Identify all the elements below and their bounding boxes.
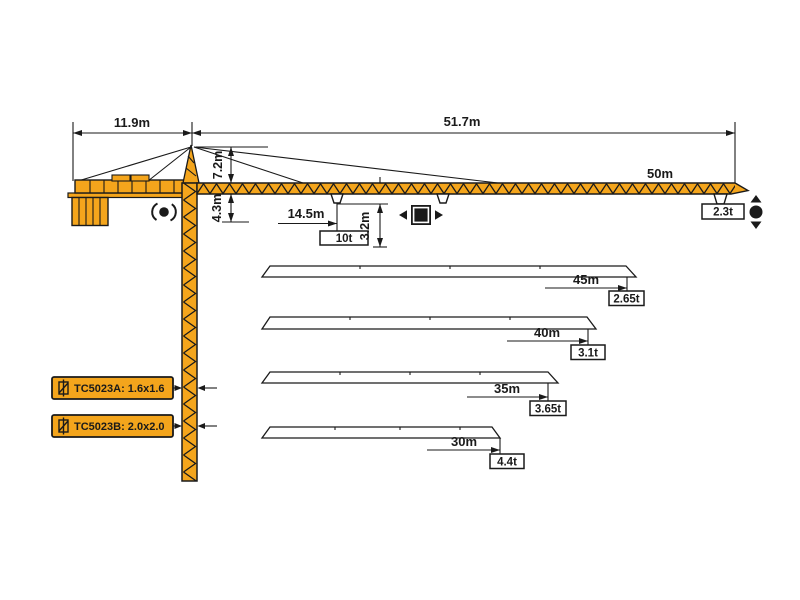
- jib-variant-45m: 45m 2.65t: [262, 266, 644, 306]
- hook-icon: [437, 194, 449, 203]
- jib-variant-40m: 40m 3.1t: [262, 317, 605, 360]
- hook-icon: [331, 194, 343, 203]
- tip-load-50m: 2.3t: [702, 204, 744, 219]
- tower-mast: [182, 145, 199, 481]
- counter-jib-cabin-box: [131, 175, 149, 181]
- mast-option-a-label: TC5023A: 1.6x1.6: [74, 383, 165, 395]
- tip-load-45m-value: 2.65t: [613, 294, 639, 306]
- min-radius-label: 14.5m: [288, 206, 325, 221]
- hook-icon: [714, 194, 727, 204]
- tip-load-40m-value: 3.1t: [578, 348, 598, 360]
- jib-underside-dimension: 4.3m: [210, 194, 249, 223]
- tip-load-50m-value: 2.3t: [713, 207, 733, 219]
- jib-35m-label: 35m: [494, 381, 520, 396]
- hoist-icon: [750, 195, 763, 229]
- jib-30m-label: 30m: [451, 434, 477, 449]
- tip-load-35m-value: 3.65t: [535, 404, 561, 416]
- mast-option-b-label: TC5023B: 2.0x2.0: [74, 421, 165, 433]
- jib-underside-height-label: 4.3m: [210, 194, 224, 223]
- crane-spec-diagram: 11.9m 51.7m: [0, 0, 800, 600]
- main-jib-length-label: 51.7m: [444, 114, 481, 129]
- hook-drop-label: 3.2m: [358, 212, 372, 241]
- tower-head-spire: [183, 145, 199, 183]
- jib-variant-30m: 30m 4.4t: [262, 427, 524, 469]
- crane-diagram-svg: 11.9m 51.7m: [0, 0, 800, 600]
- min-radius-dimension: 14.5m 10t: [278, 203, 368, 245]
- slewing-icon: [152, 204, 176, 221]
- trolley-hooks: [331, 194, 727, 204]
- counter-jib-length-label: 11.9m: [114, 115, 150, 130]
- jib-45m-label: 45m: [573, 272, 599, 287]
- tower-head-height-label: 7.2m: [211, 151, 225, 180]
- max-capacity-label: 10t: [336, 233, 353, 245]
- jib-variant-35m: 35m 3.65t: [262, 372, 566, 416]
- counter-jib-cabin-box: [112, 175, 130, 181]
- tower-head-dimension: 7.2m: [196, 147, 268, 183]
- jib-40m-label: 40m: [534, 325, 560, 340]
- trolley-travel-icon: [399, 205, 443, 225]
- counterweight: [72, 198, 108, 226]
- tip-load-30m-value: 4.4t: [497, 457, 517, 469]
- jib-50m-label: 50m: [647, 166, 673, 181]
